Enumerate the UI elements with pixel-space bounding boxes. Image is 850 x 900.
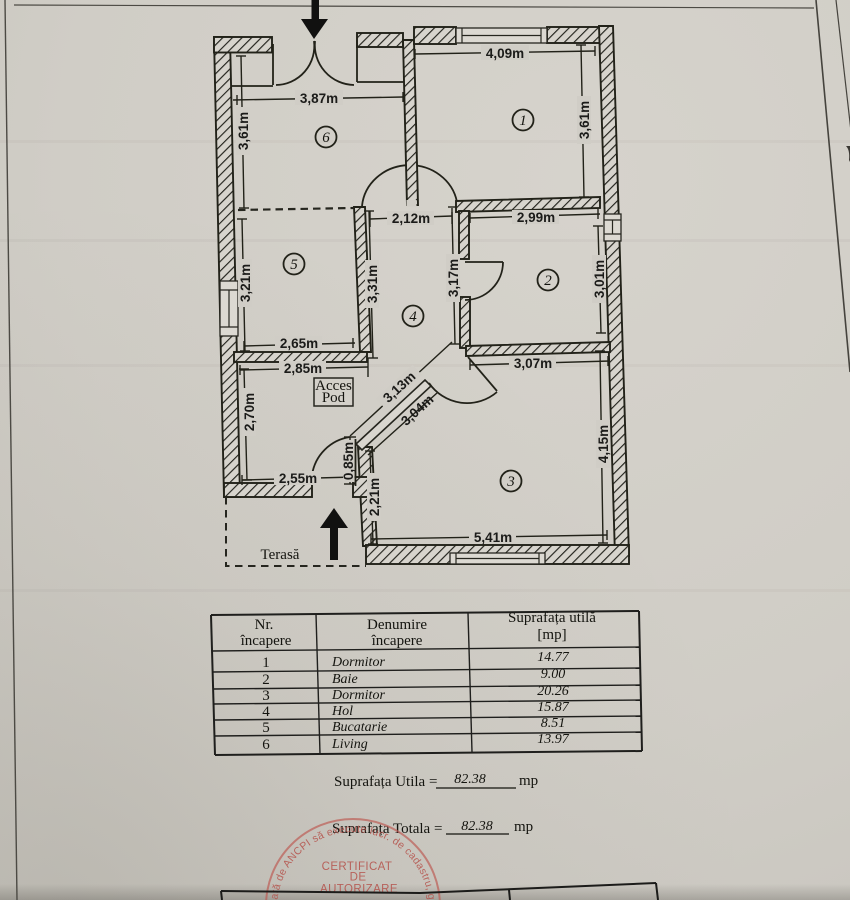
svg-text:2,12m: 2,12m	[392, 211, 430, 226]
svg-text:6: 6	[262, 737, 270, 753]
svg-text:încapere: încapere	[371, 633, 423, 649]
svg-text:4: 4	[409, 309, 417, 325]
svg-text:4: 4	[262, 704, 270, 720]
svg-text:2,65m: 2,65m	[280, 336, 318, 351]
svg-text:82.38: 82.38	[461, 819, 493, 834]
svg-text:2: 2	[262, 672, 270, 688]
svg-text:4,15m: 4,15m	[596, 425, 611, 463]
svg-text:mp: mp	[514, 819, 533, 835]
svg-text:4,09m: 4,09m	[486, 46, 524, 61]
svg-text:8.51: 8.51	[541, 716, 566, 731]
svg-text:5: 5	[262, 720, 270, 736]
svg-text:Baie: Baie	[332, 672, 358, 687]
svg-text:Nr.: Nr.	[255, 617, 274, 633]
svg-text:9.00: 9.00	[541, 667, 566, 682]
svg-text:Suprafața utilă: Suprafața utilă	[508, 610, 596, 626]
svg-text:3,17m: 3,17m	[446, 259, 461, 297]
svg-text:3,61m: 3,61m	[577, 101, 592, 139]
svg-text:2,85m: 2,85m	[284, 361, 322, 376]
svg-text:[mp]: [mp]	[537, 627, 566, 643]
svg-text:20.26: 20.26	[537, 684, 569, 699]
svg-text:14.77: 14.77	[537, 650, 570, 665]
svg-text:Hol: Hol	[331, 704, 353, 719]
svg-text:3,31m: 3,31m	[365, 265, 380, 303]
svg-text:Terasă: Terasă	[261, 547, 300, 563]
svg-text:Dormitor: Dormitor	[331, 688, 385, 703]
svg-text:3,87m: 3,87m	[300, 91, 338, 106]
svg-text:2,70m: 2,70m	[242, 393, 257, 431]
svg-text:3,61m: 3,61m	[236, 112, 251, 150]
svg-text:5: 5	[290, 257, 298, 273]
svg-text:Suprafața Utila =: Suprafața Utila =	[334, 774, 437, 790]
svg-text:Living: Living	[331, 737, 368, 752]
svg-text:2,21m: 2,21m	[367, 478, 382, 516]
svg-text:0,85m: 0,85m	[341, 442, 356, 480]
svg-text:Dormitor: Dormitor	[331, 655, 385, 670]
svg-text:1: 1	[519, 113, 527, 129]
svg-text:mp: mp	[519, 773, 538, 789]
svg-text:DE: DE	[350, 872, 367, 884]
svg-text:Denumire: Denumire	[367, 617, 427, 633]
svg-text:1: 1	[262, 655, 270, 671]
svg-text:5,41m: 5,41m	[474, 530, 512, 545]
svg-text:3,21m: 3,21m	[238, 264, 253, 302]
svg-text:13.97: 13.97	[537, 732, 570, 747]
svg-text:15.87: 15.87	[537, 700, 570, 715]
svg-text:2,55m: 2,55m	[279, 471, 317, 486]
svg-text:încapere: încapere	[240, 633, 292, 649]
svg-text:Bucatarie: Bucatarie	[332, 720, 387, 735]
svg-text:3: 3	[506, 474, 515, 490]
svg-text:6: 6	[322, 130, 330, 146]
svg-text:2: 2	[544, 273, 552, 289]
svg-text:3: 3	[262, 688, 270, 704]
svg-text:3,01m: 3,01m	[592, 260, 607, 298]
svg-text:3,07m: 3,07m	[514, 356, 552, 371]
svg-text:2,99m: 2,99m	[517, 210, 555, 225]
svg-text:AUTORIZARE: AUTORIZARE	[320, 884, 398, 896]
svg-text:82.38: 82.38	[454, 772, 486, 787]
svg-text:Pod: Pod	[322, 390, 346, 406]
